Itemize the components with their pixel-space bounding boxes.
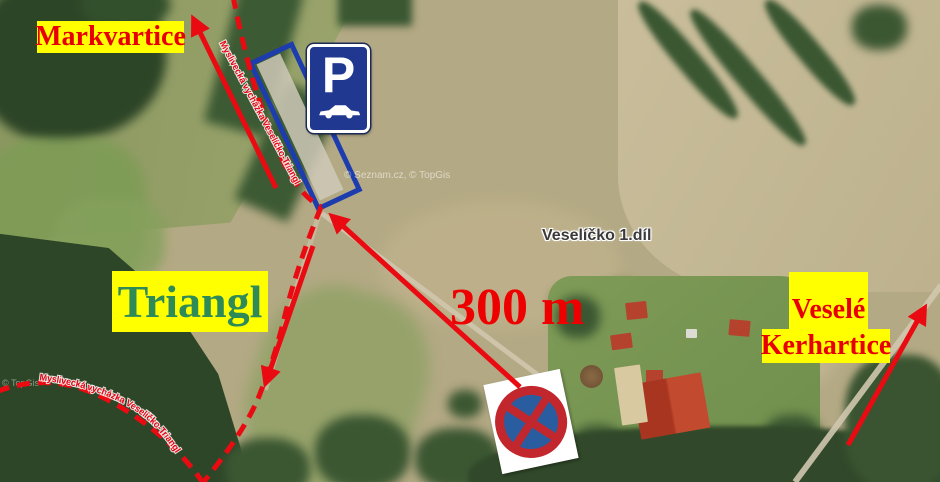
arrow-to-triangl — [266, 246, 313, 382]
trail-dashed-line — [202, 207, 321, 482]
label-markvartice: Markvartice — [37, 21, 184, 53]
trail-name-upper: Myslivecká vycházka Veselíčko-Triangl — [217, 39, 302, 186]
map-canvas: Myslivecká vycházka Veselíčko-Triangl My… — [0, 0, 940, 482]
label-vesele: Veselé — [789, 272, 868, 329]
arrow-to-markvartice — [194, 20, 276, 188]
trail-name-lower: Myslivecká vycházka Veselíčko-Triangl — [39, 372, 183, 455]
label-distance: 300 m — [450, 278, 584, 337]
label-markvartice-text: Markvartice — [35, 21, 186, 53]
trail-dashed-line — [233, 0, 321, 207]
label-triangl: Triangl — [112, 271, 268, 332]
annotation-overlay: Myslivecká vycházka Veselíčko-Triangl My… — [0, 0, 940, 482]
label-kerhartice-text: Kerhartice — [761, 330, 892, 362]
label-triangl-text: Triangl — [118, 275, 263, 328]
label-kerhartice: Kerhartice — [762, 329, 890, 363]
label-vesele-text: Veselé — [792, 294, 866, 326]
